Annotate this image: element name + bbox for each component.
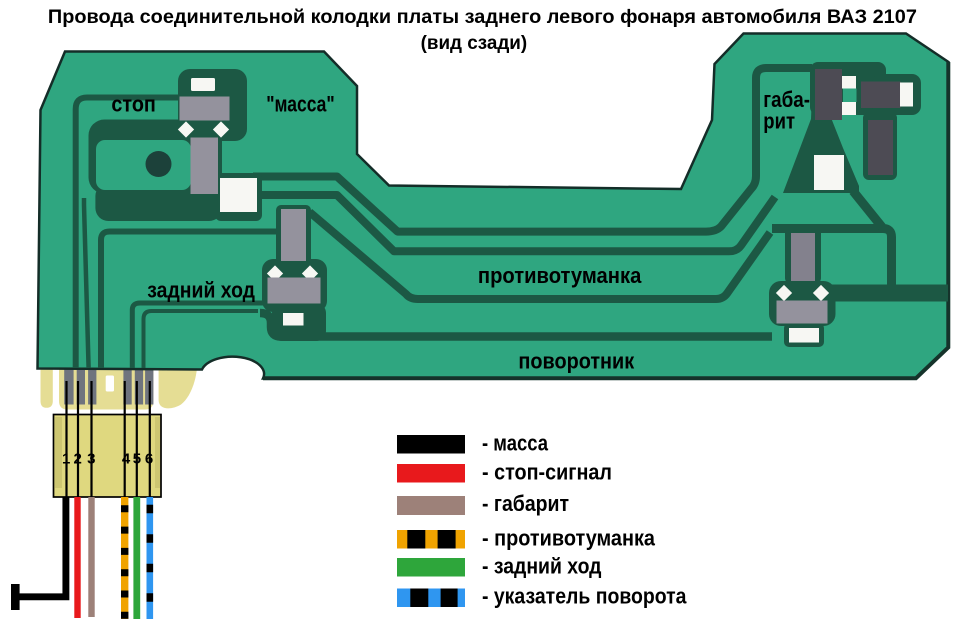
svg-text:поворотник: поворотник xyxy=(518,348,635,373)
svg-text:Провода соединительной колодки: Провода соединительной колодки платы зад… xyxy=(48,7,917,28)
svg-text:стоп: стоп xyxy=(111,92,155,117)
svg-text:- задний ход: - задний ход xyxy=(482,554,602,579)
svg-text:- указатель поворота: - указатель поворота xyxy=(482,584,687,609)
svg-text:3: 3 xyxy=(87,451,95,468)
svg-text:задний ход: задний ход xyxy=(147,278,255,303)
svg-text:6: 6 xyxy=(145,451,153,468)
svg-text:- масса: - масса xyxy=(482,431,549,456)
svg-text:(вид сзади): (вид сзади) xyxy=(421,33,528,54)
svg-text:- стоп-сигнал: - стоп-сигнал xyxy=(482,460,612,485)
svg-text:"масса": "масса" xyxy=(266,92,335,117)
svg-text:рит: рит xyxy=(763,109,795,134)
svg-text:5: 5 xyxy=(133,451,141,468)
svg-text:противотуманка: противотуманка xyxy=(478,263,642,288)
svg-text:2: 2 xyxy=(74,451,82,468)
svg-text:- противотуманка: - противотуманка xyxy=(482,526,656,551)
svg-text:4: 4 xyxy=(122,451,131,468)
svg-text:1: 1 xyxy=(62,451,70,468)
svg-text:- габарит: - габарит xyxy=(482,491,569,516)
